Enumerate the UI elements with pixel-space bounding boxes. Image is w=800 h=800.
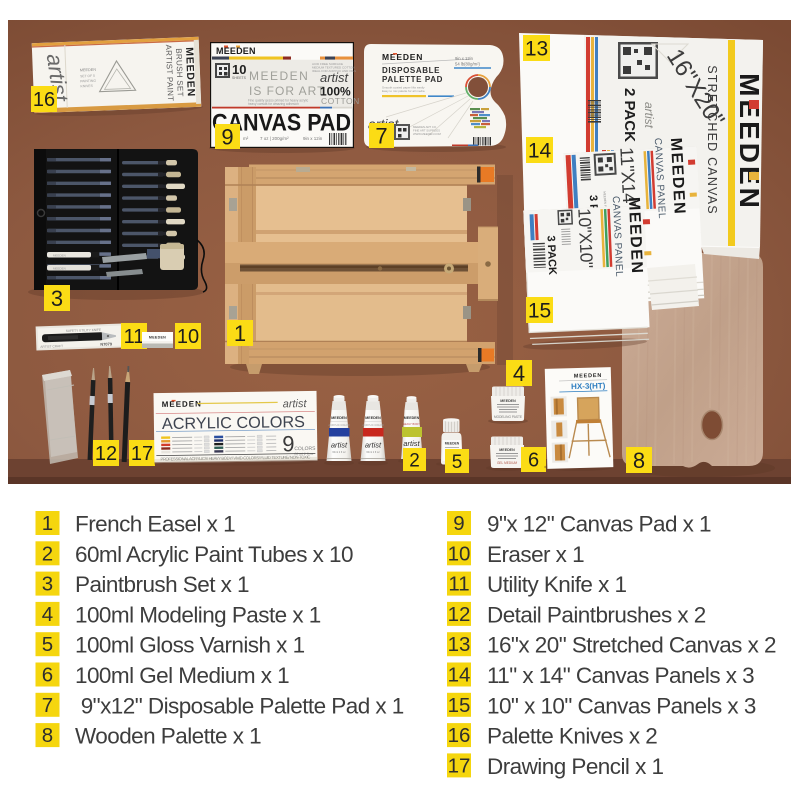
svg-text:French Easel x 1: French Easel x 1 xyxy=(75,512,235,537)
svg-text:MEEDEN: MEEDEN xyxy=(162,399,202,409)
svg-text:Detail Paintbrushes x 2: Detail Paintbrushes x 2 xyxy=(487,602,706,627)
svg-text:5: 5 xyxy=(42,633,53,656)
svg-text:MEEDEN: MEEDEN xyxy=(445,442,460,446)
svg-text:GEL MEDIUM: GEL MEDIUM xyxy=(497,461,517,465)
svg-text:KNIVES: KNIVES xyxy=(80,84,93,89)
svg-text:BRUSH SET: BRUSH SET xyxy=(174,48,185,97)
svg-text:HEAVY BODY: HEAVY BODY xyxy=(403,422,420,426)
svg-text:12: 12 xyxy=(95,443,117,465)
svg-text:10: 10 xyxy=(448,542,471,565)
svg-text:8: 8 xyxy=(42,724,53,747)
svg-text:MEEDEN: MEEDEN xyxy=(574,373,602,380)
svg-text:15: 15 xyxy=(448,694,471,717)
svg-text:Paintbrush Set x 1: Paintbrush Set x 1 xyxy=(75,572,249,597)
svg-text:11: 11 xyxy=(448,573,469,596)
svg-text:54 lb(80g/m²): 54 lb(80g/m²) xyxy=(455,62,481,67)
svg-text:16: 16 xyxy=(448,724,471,747)
svg-text:15: 15 xyxy=(528,300,551,323)
svg-text:IS FOR ART: IS FOR ART xyxy=(249,84,325,98)
svg-text:60ml 2 fl oz: 60ml 2 fl oz xyxy=(332,450,346,454)
svg-text:4: 4 xyxy=(42,603,53,626)
svg-text:100ml Gel Medium x 1: 100ml Gel Medium x 1 xyxy=(75,663,289,688)
svg-text:artist: artist xyxy=(283,398,308,410)
svg-text:11: 11 xyxy=(124,326,145,348)
svg-text:N7079: N7079 xyxy=(100,341,113,346)
svg-text:PAINTING: PAINTING xyxy=(80,79,96,84)
svg-text:MEEDEN: MEEDEN xyxy=(331,416,347,420)
svg-text:13: 13 xyxy=(448,633,471,656)
svg-text:10"X10": 10"X10" xyxy=(574,208,597,269)
svg-text:12: 12 xyxy=(448,603,471,626)
svg-text:1: 1 xyxy=(234,321,246,346)
svg-text:ACRYLIC COLOR: ACRYLIC COLOR xyxy=(362,423,383,427)
svg-text:SHEETS: SHEETS xyxy=(232,76,247,80)
svg-text:9in x 12in: 9in x 12in xyxy=(455,56,474,61)
svg-text:DISPOSABLE: DISPOSABLE xyxy=(382,66,440,75)
svg-text:7 oz | 200g/m²: 7 oz | 200g/m² xyxy=(260,136,289,141)
svg-text:13: 13 xyxy=(525,38,548,61)
svg-text:MEEDEN: MEEDEN xyxy=(53,267,66,271)
svg-text:16"x 20" Stretched Canvas x 2: 16"x 20" Stretched Canvas x 2 xyxy=(487,633,776,658)
svg-text:MEEDEN: MEEDEN xyxy=(216,46,256,56)
svg-text:Utility Knife x 1: Utility Knife x 1 xyxy=(487,572,626,597)
svg-text:10: 10 xyxy=(177,326,199,348)
svg-text:Drawing Pencil x 1: Drawing Pencil x 1 xyxy=(487,754,663,779)
svg-text:PALETTE PAD: PALETTE PAD xyxy=(382,75,443,84)
svg-text:17: 17 xyxy=(131,443,153,465)
svg-text:MEEDEN: MEEDEN xyxy=(499,448,515,452)
svg-text:2: 2 xyxy=(409,450,420,471)
svg-text:MEEDEN: MEEDEN xyxy=(404,416,420,420)
svg-text:11" x 14" Canvas Panels x 3: 11" x 14" Canvas Panels x 3 xyxy=(487,663,754,688)
svg-text:MEEDEN: MEEDEN xyxy=(249,69,309,83)
svg-text:artist: artist xyxy=(642,102,656,129)
svg-text:17: 17 xyxy=(448,754,471,777)
svg-text:7: 7 xyxy=(42,694,53,717)
svg-text:MEEDEN: MEEDEN xyxy=(365,416,381,420)
svg-text:Eraser x 1: Eraser x 1 xyxy=(487,542,584,567)
svg-text:artist: artist xyxy=(365,441,382,450)
svg-text:6: 6 xyxy=(42,664,53,687)
svg-text:MEEDEN: MEEDEN xyxy=(382,52,423,62)
svg-text:Palette Knives x 2: Palette Knives x 2 xyxy=(487,724,657,749)
svg-text:MEEDEN: MEEDEN xyxy=(183,47,197,97)
svg-text:HX-3(HT): HX-3(HT) xyxy=(571,381,606,391)
svg-text:2 PACK: 2 PACK xyxy=(621,88,638,142)
svg-text:7: 7 xyxy=(375,123,387,148)
svg-text:100ml Gloss Varnish x 1: 100ml Gloss Varnish x 1 xyxy=(75,633,305,658)
svg-text:14: 14 xyxy=(528,140,552,163)
svg-text:8: 8 xyxy=(633,448,645,473)
svg-text:6: 6 xyxy=(528,450,539,472)
svg-text:heavy canvas for amazing adhes: heavy canvas for amazing adhesion xyxy=(248,102,299,106)
svg-text:9: 9 xyxy=(453,512,464,535)
svg-text:Easy to mix palette for all me: Easy to mix palette for all media xyxy=(382,89,425,93)
svg-text:4: 4 xyxy=(513,361,525,386)
svg-text:9: 9 xyxy=(221,124,233,149)
svg-text:1: 1 xyxy=(42,512,53,535)
svg-text:m²: m² xyxy=(243,136,249,141)
svg-text:Wooden Palette x 1: Wooden Palette x 1 xyxy=(75,724,261,749)
svg-text:3: 3 xyxy=(51,286,63,311)
svg-text:MODELING PASTE: MODELING PASTE xyxy=(494,415,522,419)
svg-text:ARTIST CRAFT: ARTIST CRAFT xyxy=(40,344,63,349)
svg-text:WWW.MEEDEN.COM: WWW.MEEDEN.COM xyxy=(413,132,441,136)
svg-text:10: 10 xyxy=(232,62,246,77)
svg-text:9in x 12in: 9in x 12in xyxy=(303,136,323,141)
svg-text:9"x12" Disposable Palette Pad: 9"x12" Disposable Palette Pad x 1 xyxy=(75,693,404,718)
svg-text:14: 14 xyxy=(448,664,471,687)
svg-text:3: 3 xyxy=(42,573,53,596)
svg-text:9: 9 xyxy=(282,431,295,456)
svg-text:60ml Acrylic Paint Tubes x 10: 60ml Acrylic Paint Tubes x 10 xyxy=(75,542,353,567)
svg-text:SET OF 5: SET OF 5 xyxy=(80,74,95,79)
svg-text:STRETCHED CANVAS: STRETCHED CANVAS xyxy=(705,65,719,215)
svg-text:2: 2 xyxy=(42,542,53,565)
svg-text:9"x 12" Canvas Pad x 1: 9"x 12" Canvas Pad x 1 xyxy=(487,512,711,537)
svg-text:100ml Modeling Paste x 1: 100ml Modeling Paste x 1 xyxy=(75,602,321,627)
svg-text:MEEDEN: MEEDEN xyxy=(80,68,97,73)
svg-text:60ml 2 fl oz: 60ml 2 fl oz xyxy=(366,450,380,454)
svg-text:MEEDEN: MEEDEN xyxy=(500,399,516,403)
svg-text:artist: artist xyxy=(320,70,350,85)
svg-text:artist: artist xyxy=(331,441,348,450)
svg-text:10" x 10" Canvas Panels x 3: 10" x 10" Canvas Panels x 3 xyxy=(487,693,756,718)
svg-text:MEEDEN: MEEDEN xyxy=(149,336,166,340)
svg-text:MEEDEN: MEEDEN xyxy=(53,254,66,258)
svg-text:5: 5 xyxy=(452,452,463,473)
svg-text:artist: artist xyxy=(403,439,420,448)
svg-text:3 PACK: 3 PACK xyxy=(544,235,558,275)
svg-text:COTTON: COTTON xyxy=(321,96,360,106)
svg-text:16: 16 xyxy=(33,89,55,111)
svg-text:MEEDEN: MEEDEN xyxy=(625,197,645,275)
svg-text:ACRYLIC COLOR: ACRYLIC COLOR xyxy=(328,423,349,427)
svg-text:MEEDEN: MEEDEN xyxy=(734,73,765,211)
